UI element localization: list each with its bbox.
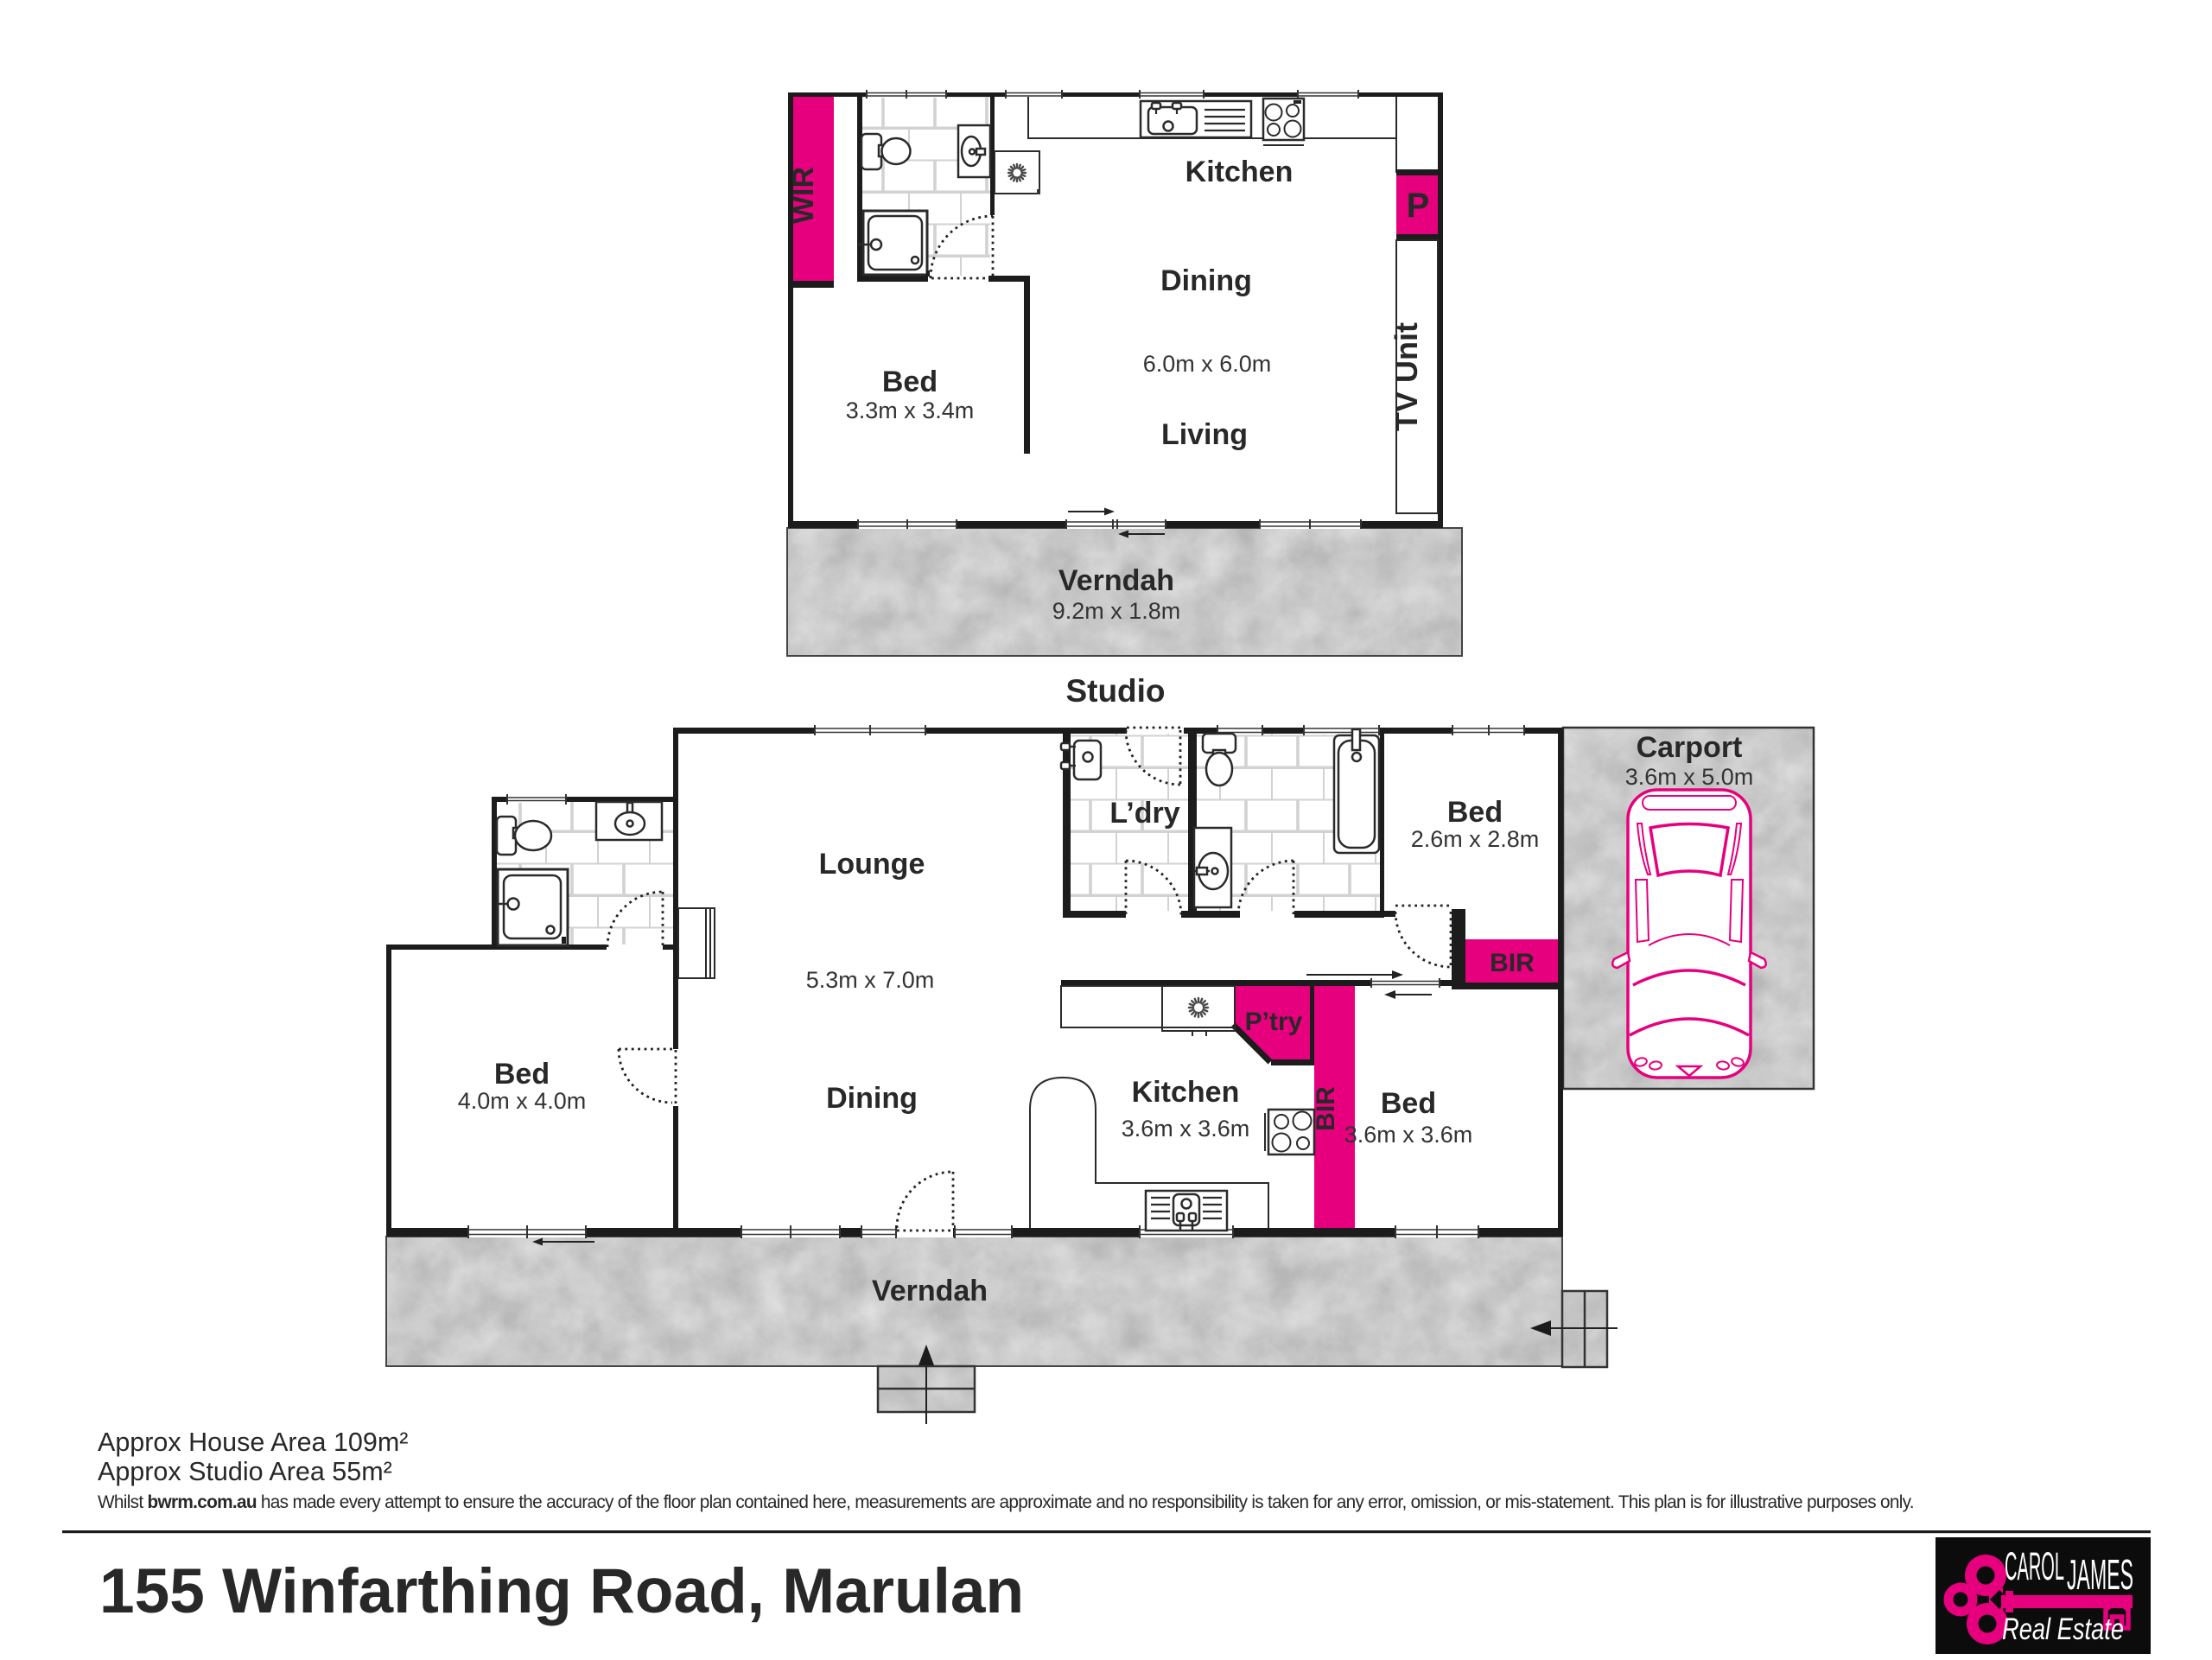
svg-text:3.6m x 3.6m: 3.6m x 3.6m — [1122, 1116, 1250, 1142]
svg-text:Approx House Area 109m²: Approx House Area 109m² — [98, 1428, 408, 1457]
svg-text:TV Unit: TV Unit — [1389, 322, 1424, 431]
svg-text:3.6m x 5.0m: 3.6m x 5.0m — [1625, 764, 1754, 790]
svg-text:Living: Living — [1161, 418, 1248, 451]
svg-text:9.2m x 1.8m: 9.2m x 1.8m — [1052, 598, 1181, 624]
svg-text:Dining: Dining — [826, 1082, 918, 1115]
svg-text:Verndah: Verndah — [1058, 564, 1174, 597]
svg-text:BIR: BIR — [1312, 1086, 1340, 1131]
svg-text:5.3m x 7.0m: 5.3m x 7.0m — [806, 967, 935, 993]
svg-text:2.6m x 2.8m: 2.6m x 2.8m — [1411, 826, 1540, 852]
svg-text:Bed: Bed — [882, 366, 938, 398]
svg-text:Kitchen: Kitchen — [1185, 156, 1294, 188]
svg-text:155 Winfarthing Road, Marulan: 155 Winfarthing Road, Marulan — [99, 1556, 1024, 1626]
svg-text:BIR: BIR — [1490, 949, 1535, 977]
svg-text:CAROL: CAROL — [2005, 1544, 2064, 1588]
svg-text:WIR: WIR — [787, 167, 820, 224]
svg-text:Approx Studio Area 55m²: Approx Studio Area 55m² — [98, 1457, 392, 1486]
svg-text:Bed: Bed — [1447, 796, 1503, 829]
svg-text:Whilst bwrm.com.au has made ev: Whilst bwrm.com.au has made every attemp… — [98, 1492, 1914, 1512]
svg-text:Bed: Bed — [1381, 1087, 1436, 1120]
svg-text:6.0m x 6.0m: 6.0m x 6.0m — [1143, 351, 1272, 377]
svg-text:4.0m x 4.0m: 4.0m x 4.0m — [458, 1088, 587, 1114]
svg-text:Carport: Carport — [1637, 731, 1743, 764]
svg-text:JAMES: JAMES — [2067, 1552, 2133, 1599]
svg-text:3.3m x 3.4m: 3.3m x 3.4m — [846, 398, 975, 423]
svg-text:Studio: Studio — [1065, 673, 1165, 709]
svg-text:Verndah: Verndah — [872, 1275, 988, 1307]
svg-text:Dining: Dining — [1160, 264, 1252, 297]
svg-text:Lounge: Lounge — [819, 848, 925, 881]
svg-text:P: P — [1407, 187, 1430, 225]
svg-text:3.6m x 3.6m: 3.6m x 3.6m — [1344, 1122, 1473, 1148]
svg-text:L’dry: L’dry — [1109, 797, 1179, 830]
svg-text:Bed: Bed — [494, 1058, 550, 1091]
svg-text:Kitchen: Kitchen — [1132, 1076, 1240, 1109]
svg-text:P’try: P’try — [1245, 1008, 1303, 1036]
svg-text:Real Estate: Real Estate — [2002, 1612, 2124, 1646]
